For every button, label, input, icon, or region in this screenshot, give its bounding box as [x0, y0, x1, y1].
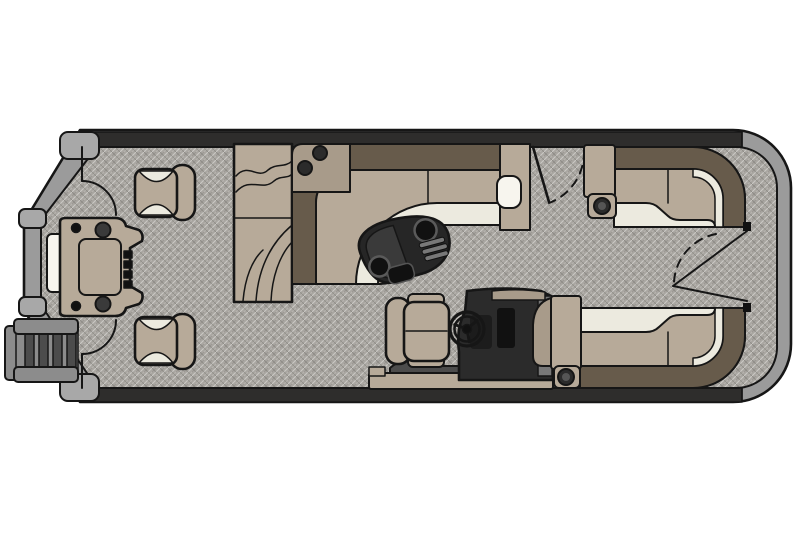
stern-fishing-chair-starboard	[135, 314, 195, 369]
fishing-station-tray	[79, 239, 121, 295]
helm-dash-panel	[497, 308, 515, 348]
stern-fishing-chair-port	[135, 165, 195, 220]
station-cup-holder	[96, 223, 111, 238]
station-rod-holder	[124, 251, 132, 258]
stern-cap-mid-bottom	[19, 297, 46, 316]
ladder-rail-bottom	[14, 367, 78, 382]
ladder-rung	[25, 331, 34, 371]
pontoon-floorplan-canvas	[0, 0, 800, 534]
bow-lounge-starboard	[533, 296, 745, 388]
chaise-base	[234, 144, 292, 302]
captains-chair	[386, 294, 449, 367]
helm-base-step	[369, 367, 385, 376]
lounge-cup-holder	[313, 146, 327, 160]
chaise-lounge	[234, 144, 292, 302]
stern-cap-mid-top	[19, 209, 46, 228]
bow-gate-post	[743, 303, 751, 312]
bow-cup-holder-ring	[562, 373, 570, 381]
pontoon-floorplan	[0, 0, 800, 534]
ladder-rung	[67, 331, 76, 371]
wheel-hub	[463, 325, 472, 334]
station-rod-holder	[124, 281, 132, 288]
bow-lounge-armrest	[551, 296, 581, 369]
boarding-ladder	[5, 319, 78, 382]
station-rod-holder	[124, 271, 132, 278]
lounge-armrest-tray	[497, 176, 521, 208]
ladder-rung	[39, 331, 48, 371]
stern-fishing-station	[60, 218, 143, 316]
bow-lounge-armrest	[584, 145, 615, 197]
helm-console-top	[492, 290, 545, 300]
ladder-rail-top	[14, 319, 78, 334]
lounge-cup-holder	[298, 161, 312, 175]
station-cup-holder	[96, 297, 111, 312]
bow-gate-post	[743, 222, 751, 231]
stern-cap-top	[60, 132, 99, 159]
station-screw	[72, 302, 81, 311]
station-rod-holder	[124, 261, 132, 268]
bow-cup-holder-ring	[598, 202, 606, 210]
steering-wheel	[450, 312, 484, 346]
bow-lounge-port	[584, 145, 745, 227]
ladder-rung	[53, 331, 62, 371]
station-screw	[72, 224, 81, 233]
